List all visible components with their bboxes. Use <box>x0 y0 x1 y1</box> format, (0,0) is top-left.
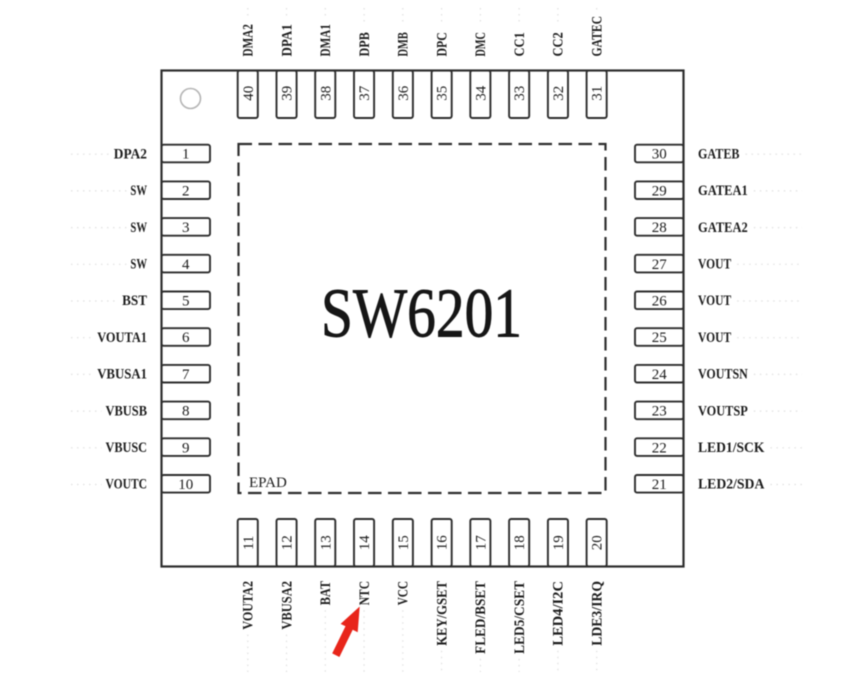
svg-text:17: 17 <box>473 535 489 551</box>
svg-text:FLED/BSET: FLED/BSET <box>473 581 489 654</box>
svg-text:VOUTA2: VOUTA2 <box>241 581 257 630</box>
svg-text:1: 1 <box>182 147 190 163</box>
svg-text:31: 31 <box>590 86 606 101</box>
svg-text:GATEC: GATEC <box>590 16 606 57</box>
svg-text:BAT: BAT <box>318 581 334 605</box>
svg-text:32: 32 <box>551 86 567 101</box>
svg-text:DMA2: DMA2 <box>241 24 257 56</box>
svg-text:DMB: DMB <box>396 32 412 56</box>
svg-text:8: 8 <box>182 404 190 420</box>
svg-text:36: 36 <box>396 85 412 101</box>
svg-text:GATEB: GATEB <box>698 146 740 162</box>
svg-text:20: 20 <box>590 535 606 550</box>
svg-text:25: 25 <box>652 330 667 346</box>
svg-text:CC1: CC1 <box>512 32 528 56</box>
svg-text:27: 27 <box>652 257 668 273</box>
svg-text:30: 30 <box>652 147 667 163</box>
svg-text:5: 5 <box>182 294 190 310</box>
svg-text:3: 3 <box>182 220 190 236</box>
svg-text:DMC: DMC <box>473 32 489 56</box>
svg-text:SW6201: SW6201 <box>321 276 522 353</box>
svg-text:NTC: NTC <box>357 581 373 605</box>
svg-text:35: 35 <box>435 86 451 101</box>
svg-text:33: 33 <box>512 86 528 101</box>
svg-text:KEY/GSET: KEY/GSET <box>434 581 450 646</box>
svg-text:VOUT: VOUT <box>698 257 731 273</box>
svg-text:DPA2: DPA2 <box>114 146 147 162</box>
svg-text:VBUSC: VBUSC <box>106 440 148 456</box>
svg-text:26: 26 <box>652 294 668 310</box>
svg-text:12: 12 <box>280 535 296 550</box>
svg-text:LED5/CSET: LED5/CSET <box>512 581 528 654</box>
svg-text:VOUT: VOUT <box>698 293 731 309</box>
svg-text:DPB: DPB <box>357 32 373 56</box>
svg-text:6: 6 <box>182 330 190 346</box>
svg-text:13: 13 <box>318 535 334 550</box>
svg-text:VOUTC: VOUTC <box>106 477 148 493</box>
svg-text:DPC: DPC <box>434 32 450 56</box>
svg-text:VOUT: VOUT <box>698 330 731 346</box>
svg-text:28: 28 <box>652 220 667 236</box>
svg-text:24: 24 <box>652 367 668 383</box>
svg-text:LED4/I2C: LED4/I2C <box>551 581 567 646</box>
svg-text:VOUTSN: VOUTSN <box>698 367 748 383</box>
svg-text:GATEA1: GATEA1 <box>698 183 748 199</box>
svg-text:14: 14 <box>357 535 373 551</box>
svg-text:EPAD: EPAD <box>249 475 287 491</box>
svg-text:22: 22 <box>652 440 667 456</box>
svg-text:SW: SW <box>130 183 147 199</box>
svg-text:37: 37 <box>357 85 373 101</box>
svg-text:CC2: CC2 <box>551 32 567 56</box>
svg-text:DMA1: DMA1 <box>318 24 334 56</box>
svg-text:38: 38 <box>318 86 334 101</box>
svg-text:29: 29 <box>652 183 667 199</box>
svg-text:SW: SW <box>130 257 147 273</box>
svg-text:4: 4 <box>182 257 190 273</box>
svg-text:VBUSA2: VBUSA2 <box>279 581 295 630</box>
svg-text:VBUSA1: VBUSA1 <box>97 367 147 383</box>
svg-text:LED1/SCK: LED1/SCK <box>698 440 765 456</box>
svg-text:2: 2 <box>182 183 190 199</box>
svg-text:18: 18 <box>512 535 528 550</box>
svg-text:DPA1: DPA1 <box>279 24 295 56</box>
svg-text:9: 9 <box>182 440 190 456</box>
svg-text:16: 16 <box>435 535 451 551</box>
svg-text:VOUTSP: VOUTSP <box>698 403 748 419</box>
svg-text:GATEA2: GATEA2 <box>698 220 748 236</box>
svg-text:23: 23 <box>652 404 667 420</box>
svg-text:VOUTA1: VOUTA1 <box>97 330 147 346</box>
svg-text:7: 7 <box>182 367 190 383</box>
svg-text:34: 34 <box>473 85 489 101</box>
svg-text:VBUSB: VBUSB <box>106 403 148 419</box>
svg-text:10: 10 <box>178 477 193 493</box>
svg-text:LDE3/IRQ: LDE3/IRQ <box>590 581 606 646</box>
svg-text:21: 21 <box>652 477 667 493</box>
svg-text:VCC: VCC <box>396 581 412 605</box>
svg-text:BST: BST <box>122 293 147 309</box>
svg-text:39: 39 <box>280 86 296 101</box>
svg-text:40: 40 <box>241 86 257 101</box>
svg-text:SW: SW <box>130 220 147 236</box>
svg-text:15: 15 <box>396 535 412 550</box>
svg-text:19: 19 <box>551 535 567 550</box>
svg-text:LED2/SDA: LED2/SDA <box>698 477 765 493</box>
svg-text:11: 11 <box>241 536 257 550</box>
